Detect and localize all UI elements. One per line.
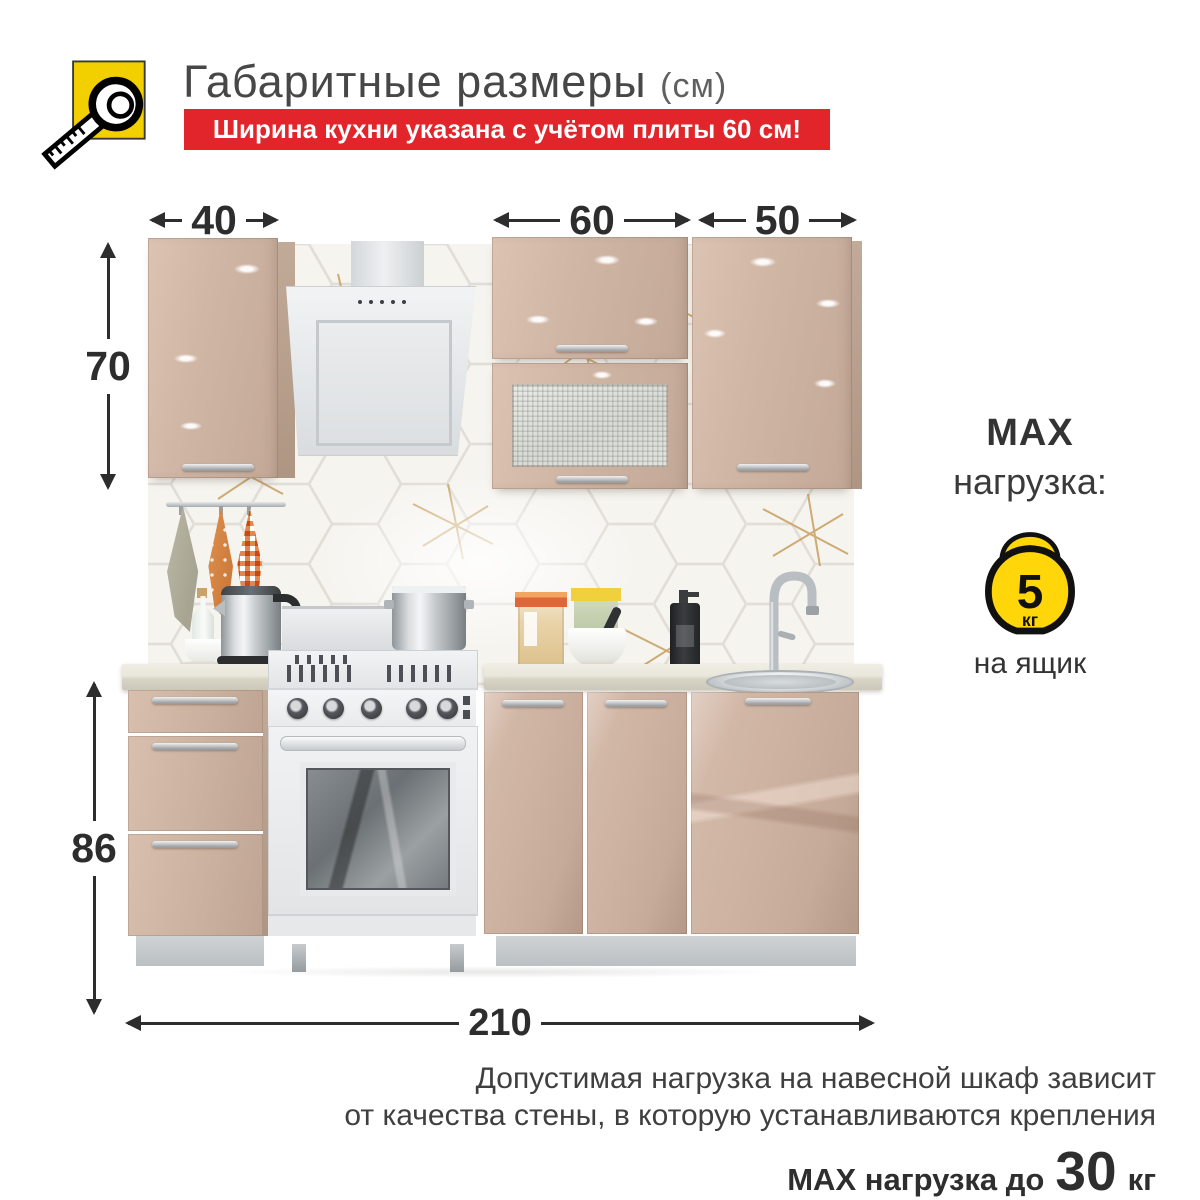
sparkle-highlight <box>526 315 550 324</box>
glass-insert <box>512 384 668 467</box>
oven-window <box>300 762 456 896</box>
door-reflection <box>691 692 859 934</box>
floor-shadow <box>130 964 870 980</box>
kettle <box>221 586 281 658</box>
sparkle-highlight <box>594 255 620 265</box>
stove-knob <box>287 698 308 719</box>
sink <box>706 670 854 694</box>
stove-bottom-panel <box>268 914 476 936</box>
door-handle <box>502 700 564 707</box>
door-handle <box>605 700 667 707</box>
burner-grate <box>295 655 351 664</box>
base-door <box>484 692 583 934</box>
stove-leg <box>450 944 464 972</box>
towel-rail <box>166 502 286 507</box>
drawer-handle <box>152 841 238 848</box>
burner-grate <box>287 665 351 682</box>
footnote-line2: от качества стены, в которую устанавлива… <box>344 1097 1156 1134</box>
igniter-button <box>463 710 470 719</box>
igniter-button <box>463 696 470 705</box>
cabinet-handle <box>737 464 809 471</box>
sparkle-highlight <box>816 299 840 308</box>
hood-panel <box>316 320 452 446</box>
pot-handle <box>464 600 474 609</box>
oven-handle <box>280 736 466 751</box>
sparkle-highlight <box>814 379 836 388</box>
plinth <box>136 936 264 966</box>
wall-cabinet-60-glass-door <box>492 363 688 489</box>
sparkle-highlight <box>704 329 726 338</box>
sink-bowl <box>724 675 836 689</box>
max-load-target: на ящик <box>912 647 1148 681</box>
wall-cabinet-50 <box>692 237 852 489</box>
soap-dispenser <box>670 603 700 668</box>
plinth <box>496 936 856 966</box>
wall-cabinet-40 <box>148 238 278 478</box>
burner-grate <box>387 665 451 682</box>
sparkle-highlight <box>592 371 612 379</box>
cooking-pot <box>392 586 466 650</box>
drawer-handle <box>152 697 238 704</box>
base-drawer-unit <box>128 690 263 936</box>
load-unit: кг <box>1022 610 1038 630</box>
range-hood <box>280 286 482 456</box>
footnote-max-value: 30 <box>1055 1144 1116 1199</box>
stove-cooktop <box>268 650 478 690</box>
stove-knob <box>406 698 427 719</box>
stove-knob <box>361 698 382 719</box>
max-load-subtitle: нагрузка: <box>912 461 1148 503</box>
dispenser-label <box>676 625 694 647</box>
stove-leg <box>292 944 306 972</box>
hood-buttons <box>358 300 406 306</box>
footnote-max-load: MAX нагрузка до 30 кг <box>344 1144 1156 1199</box>
sparkle-highlight <box>234 264 260 274</box>
coffee-cup <box>185 639 221 662</box>
max-load-title: MAX <box>912 412 1148 455</box>
base-door-sink <box>691 692 859 934</box>
footnote: Допустимая нагрузка на навесной шкаф зав… <box>344 1060 1156 1199</box>
wall-cabinet-50-side <box>852 241 862 489</box>
footnote-max-prefix: MAX нагрузка до <box>787 1162 1044 1198</box>
cabinet-handle <box>182 464 254 471</box>
hood-chimney <box>351 241 424 289</box>
sparkle-highlight <box>174 354 198 363</box>
door-handle <box>745 698 811 705</box>
countertop-left <box>122 664 274 690</box>
drawer-handle <box>152 743 238 750</box>
pasta-jar <box>518 598 564 666</box>
cabinet-handle <box>556 345 628 352</box>
faucet <box>736 562 826 686</box>
sparkle-highlight <box>750 257 776 267</box>
herb-jar-lid <box>571 588 621 601</box>
kettle-lid <box>221 586 281 595</box>
pot-rim <box>392 586 466 593</box>
product-card: Габаритные размеры (см) Ширина кухни ука… <box>0 0 1200 1200</box>
kettlebell-icon: 5 кг <box>978 519 1082 641</box>
footnote-line1: Допустимая нагрузка на навесной шкаф зав… <box>344 1060 1156 1097</box>
wall-cabinet-60-top-door <box>492 237 688 359</box>
jar-label <box>524 612 537 646</box>
stove-knob <box>437 698 458 719</box>
max-load-panel: MAX нагрузка: 5 кг на ящик <box>912 412 1148 681</box>
base-door <box>587 692 687 934</box>
drawer <box>128 736 263 831</box>
pot-handle <box>384 600 394 609</box>
dispenser-nozzle <box>686 592 699 597</box>
stove-knob <box>323 698 344 719</box>
drawer <box>128 834 263 936</box>
sparkle-highlight <box>634 317 658 326</box>
sparkle-highlight <box>180 422 202 430</box>
pasta-jar-lid <box>515 592 567 607</box>
cabinet-handle <box>556 476 628 483</box>
footnote-max-unit: кг <box>1128 1162 1156 1198</box>
